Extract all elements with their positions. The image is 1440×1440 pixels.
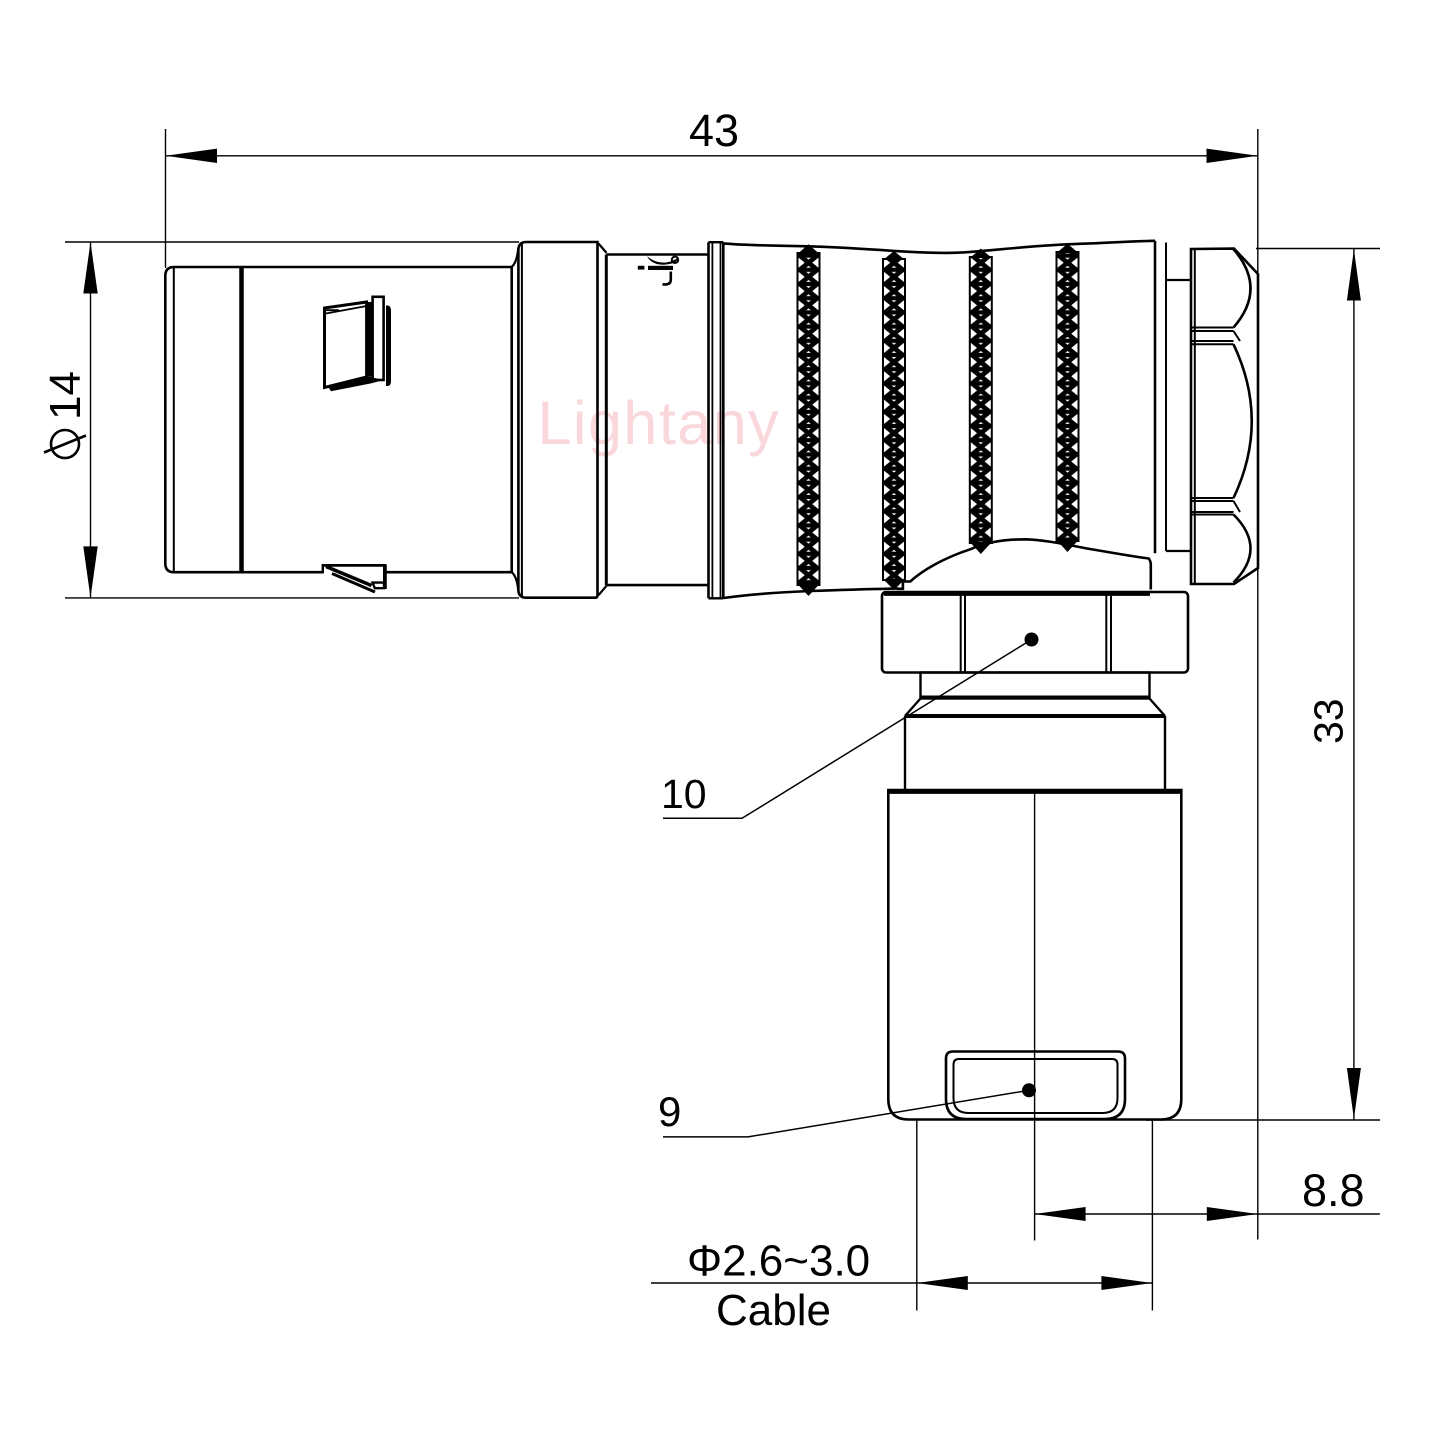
svg-text:9: 9: [658, 1088, 681, 1135]
svg-text:10: 10: [661, 771, 707, 817]
svg-text:33: 33: [1306, 698, 1352, 744]
svg-text:Φ2.6~3.0: Φ2.6~3.0: [687, 1237, 870, 1286]
svg-text:14: 14: [41, 371, 90, 420]
svg-text:Lightany: Lightany: [538, 389, 781, 457]
svg-text:43: 43: [689, 105, 739, 156]
svg-text:8.8: 8.8: [1302, 1165, 1365, 1216]
svg-text:Cable: Cable: [716, 1286, 831, 1335]
